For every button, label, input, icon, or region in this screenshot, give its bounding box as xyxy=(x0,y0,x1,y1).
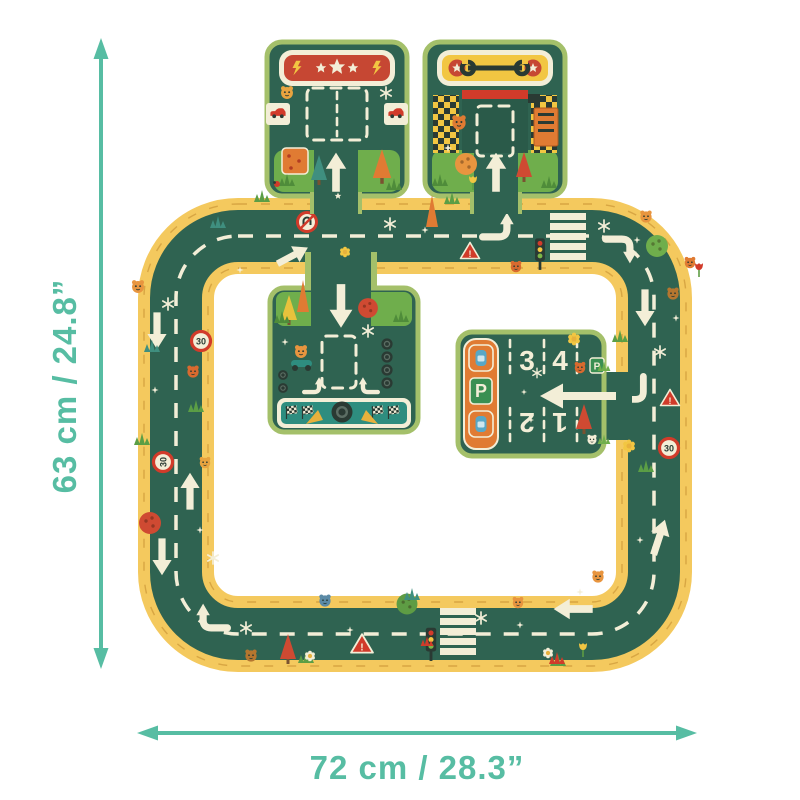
height-label: 63 cm / 24.8” xyxy=(46,279,83,494)
character xyxy=(587,435,596,445)
product-image: 30 ! 63 cm / 24.8” 72 cm / 28.3” xyxy=(0,0,800,800)
puzzle-piece-pit-stop xyxy=(270,252,418,432)
parking-spot-number: 2 xyxy=(519,407,535,438)
speed-limit-sign xyxy=(660,439,679,458)
character xyxy=(575,362,586,373)
garage-door xyxy=(462,99,528,153)
car-icon xyxy=(476,416,487,432)
orchard-icon xyxy=(282,148,308,174)
character xyxy=(685,257,696,268)
flower-icon xyxy=(695,263,703,277)
tree-icon xyxy=(646,235,668,257)
tool-cabinet-icon xyxy=(534,108,558,146)
arrow-up-icon xyxy=(94,38,109,59)
puzzle-piece-garage xyxy=(425,42,565,214)
arrow-right-icon xyxy=(676,726,697,741)
tire-icon xyxy=(381,338,392,349)
tree-icon xyxy=(358,298,378,318)
tire-icon xyxy=(278,383,288,393)
speed-limit-sign xyxy=(192,332,211,351)
speed-limit-sign xyxy=(154,453,173,472)
character xyxy=(187,366,198,378)
character xyxy=(200,457,211,468)
tree-icon xyxy=(139,512,161,534)
parking-spot-number: 4 xyxy=(552,345,568,376)
tire-icon xyxy=(278,370,288,380)
character-mechanic xyxy=(452,115,465,129)
tire-icon xyxy=(332,402,353,423)
parking-spot-number: 3 xyxy=(519,345,535,376)
character xyxy=(319,595,330,607)
character xyxy=(640,211,651,223)
parking-spot-number: 1 xyxy=(552,407,568,438)
width-dimension: 72 cm / 28.3” xyxy=(137,726,697,787)
charging-station xyxy=(266,103,290,125)
road-puzzle-dimension-diagram: 30 ! 63 cm / 24.8” 72 cm / 28.3” xyxy=(0,0,800,800)
character xyxy=(592,571,603,583)
sparkle-icon xyxy=(576,588,583,595)
boombox-icon xyxy=(528,94,540,103)
grass-icon xyxy=(254,190,270,202)
no-u-turn-sign xyxy=(298,213,317,232)
parking-banner: P xyxy=(464,339,498,449)
character xyxy=(511,261,522,272)
tire-icon xyxy=(381,364,392,375)
puzzle-piece-race-start xyxy=(266,42,408,214)
height-dimension: 63 cm / 24.8” xyxy=(46,38,109,669)
width-label: 72 cm / 28.3” xyxy=(310,749,525,786)
parking-sign-letter: P xyxy=(475,381,487,401)
arrow-down-icon xyxy=(94,648,109,669)
tire-icon xyxy=(381,351,392,362)
character xyxy=(281,86,293,99)
character xyxy=(513,597,524,608)
garage-door-header xyxy=(462,90,528,99)
puzzle-piece-parking: P 3 4 2 1 P xyxy=(458,332,635,456)
character xyxy=(132,280,144,293)
character xyxy=(667,288,678,300)
character xyxy=(245,650,256,662)
car-icon xyxy=(476,350,487,366)
charging-station xyxy=(384,103,408,125)
grass-icon xyxy=(404,588,420,600)
arrow-left-icon xyxy=(137,726,158,741)
tire-icon xyxy=(381,377,392,388)
tree-icon xyxy=(455,153,477,175)
finish-banner xyxy=(277,398,411,428)
